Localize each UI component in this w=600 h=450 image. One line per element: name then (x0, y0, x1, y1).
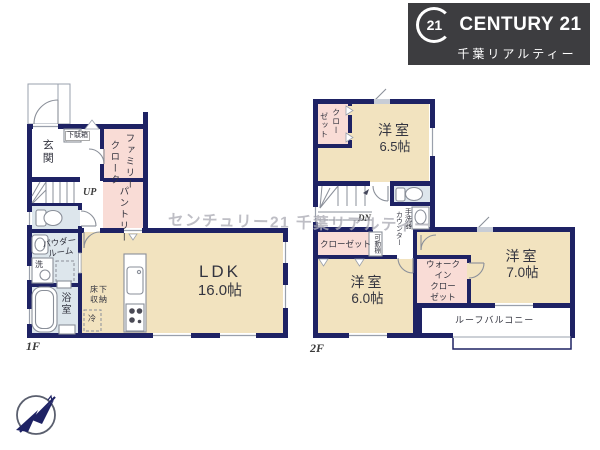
floor1-label: 1F (26, 339, 40, 353)
company-name: 千葉リアルティー (421, 45, 576, 62)
closet-a-label-col2: ゼット (319, 112, 329, 139)
stairs-up-label: UP (83, 187, 96, 199)
ldk-label: LDK 16.0帖 (170, 262, 270, 300)
c21-seal-icon: 21 (416, 7, 452, 43)
brand-name: CENTURY 21 (459, 14, 581, 36)
vent-mark-65 (374, 99, 390, 104)
entrance-label: 玄関 (40, 139, 53, 165)
stairs-1f (32, 182, 74, 203)
shoe-box-label: 下駄箱 (65, 131, 90, 141)
balcony-railing (453, 337, 571, 349)
century21-logo: 21 CENTURY 21 千葉リアルティー (408, 3, 590, 65)
bedroom-70-label: 洋室 7.0帖 (485, 248, 560, 281)
pantry-label: パントリー (117, 186, 128, 244)
family-cloak-label-col1: ファミリー (123, 133, 134, 191)
family-cloak-label-col2: クローク (108, 140, 119, 186)
movable-shelf-label: 可動棚 (372, 234, 380, 254)
entrance-porch (28, 84, 70, 124)
bathroom-label: 浴室 (58, 292, 70, 316)
kitchen-counter-icon (124, 254, 146, 332)
toilet-icon-1f (36, 210, 62, 226)
roof-balcony-label: ルーフバルコニー (455, 315, 534, 326)
bedroom-65-label: 洋室 6.5帖 (355, 122, 435, 154)
underfloor-storage-label: 床下収納 (90, 285, 108, 304)
fridge-label: 冷 (88, 314, 96, 324)
closet-a-label-col1: クロー (331, 108, 341, 135)
walk-in-closet-label: ウォークイン クローゼット (420, 259, 466, 303)
washer-label: 洗 (35, 260, 43, 270)
floorplan-image: 玄関 下駄箱 ファミリー クローク パントリー UP パウダールーム 洗 浴室 … (0, 0, 600, 450)
bath-folding-door (57, 281, 71, 288)
vent-mark-70 (477, 227, 493, 232)
compass-icon (16, 396, 55, 434)
floor2-label: 2F (310, 341, 324, 355)
bedroom-60-label: 洋室 6.0帖 (330, 274, 405, 307)
toilet-icon-2f (396, 188, 423, 202)
closet-b-label: クローゼット (320, 239, 368, 249)
